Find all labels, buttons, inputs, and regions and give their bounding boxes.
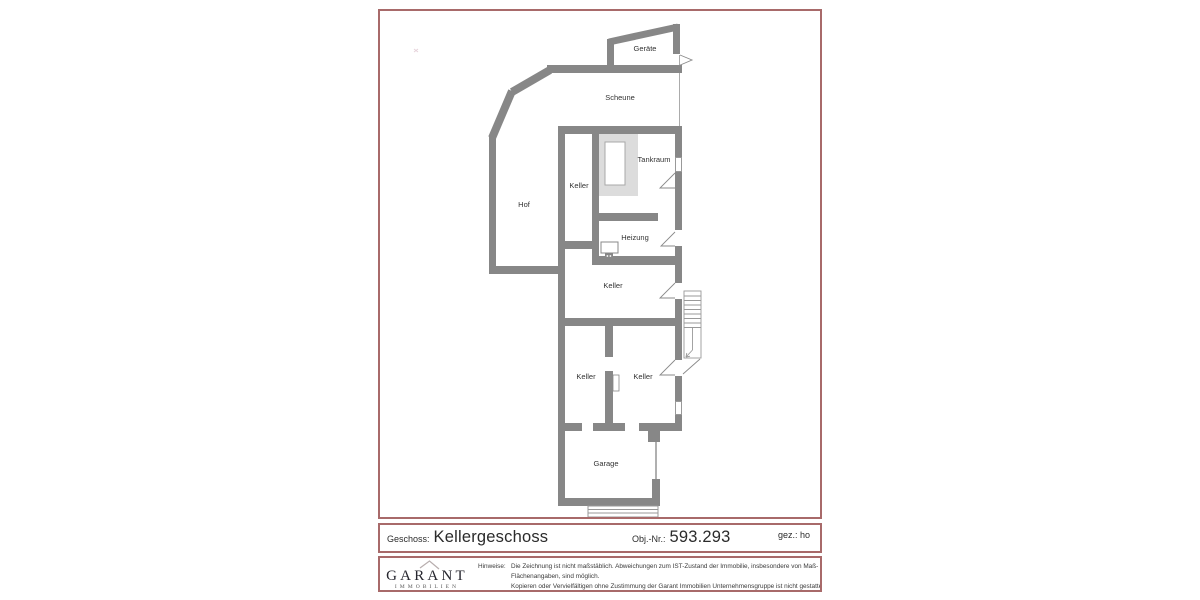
window-keller bbox=[676, 402, 682, 415]
room-label-heizung: Heizung bbox=[621, 233, 649, 242]
disclaimer-label: Hinweise: bbox=[478, 562, 511, 572]
geschoss-value: Kellergeschoss bbox=[434, 528, 549, 546]
garant-logo: GARANT IMMOBILIEN bbox=[380, 558, 478, 590]
drawing-sheet: Geräte Scheune Tankraum Keller Hof Heizu… bbox=[378, 9, 822, 592]
title-block: Geschoss:Kellergeschoss Obj.-Nr.:593.293… bbox=[378, 523, 822, 553]
room-label-tankraum: Tankraum bbox=[638, 155, 671, 164]
disclaimer-line-2: Flächenangaben, sind möglich. bbox=[478, 572, 816, 582]
object-number-group: Obj.-Nr.:593.293 bbox=[632, 528, 731, 547]
geschoss-group: Geschoss:Kellergeschoss bbox=[387, 528, 548, 547]
room-label-scheune: Scheune bbox=[605, 93, 635, 102]
walls bbox=[489, 24, 682, 506]
brand-name: GARANT bbox=[386, 568, 468, 584]
disclaimer-line-1: Die Zeichnung ist nicht maßstäblich. Abw… bbox=[511, 562, 820, 572]
disclaimer: Hinweise: Die Zeichnung ist nicht maßstä… bbox=[478, 558, 820, 590]
door-leaf bbox=[613, 375, 619, 391]
drawn-by: gez.: ho bbox=[778, 525, 810, 543]
object-number-value: 593.293 bbox=[670, 528, 731, 546]
brand-subtitle: IMMOBILIEN bbox=[395, 584, 459, 590]
room-label-geraete: Geräte bbox=[634, 44, 657, 53]
object-number-label: Obj.-Nr.: bbox=[632, 534, 666, 544]
room-label-keller-mitte: Keller bbox=[603, 281, 623, 290]
window-tankraum bbox=[676, 158, 682, 172]
footer-block: GARANT IMMOBILIEN Hinweise: Die Zeichnun… bbox=[378, 556, 822, 592]
oil-tank bbox=[605, 142, 625, 185]
floorplan-drawing: Geräte Scheune Tankraum Keller Hof Heizu… bbox=[380, 11, 820, 517]
floorplan-frame: Geräte Scheune Tankraum Keller Hof Heizu… bbox=[378, 9, 822, 519]
smudge-artifact bbox=[414, 49, 418, 52]
garage-ramp bbox=[588, 506, 658, 517]
geschoss-label: Geschoss: bbox=[387, 534, 430, 544]
room-label-keller-west: Keller bbox=[569, 181, 589, 190]
room-label-hof: Hof bbox=[518, 200, 531, 209]
exterior-stairs bbox=[684, 291, 701, 358]
disclaimer-line-3: Kopieren oder Vervielfältigen ohne Zusti… bbox=[478, 582, 816, 590]
meter-box bbox=[605, 253, 613, 259]
room-label-keller-sued-ost: Keller bbox=[633, 372, 653, 381]
tank-platform bbox=[599, 134, 638, 196]
room-label-keller-sued-west: Keller bbox=[576, 372, 596, 381]
boiler bbox=[601, 242, 618, 253]
room-label-garage: Garage bbox=[593, 459, 618, 468]
garant-logo-svg: GARANT IMMOBILIEN bbox=[380, 558, 478, 591]
